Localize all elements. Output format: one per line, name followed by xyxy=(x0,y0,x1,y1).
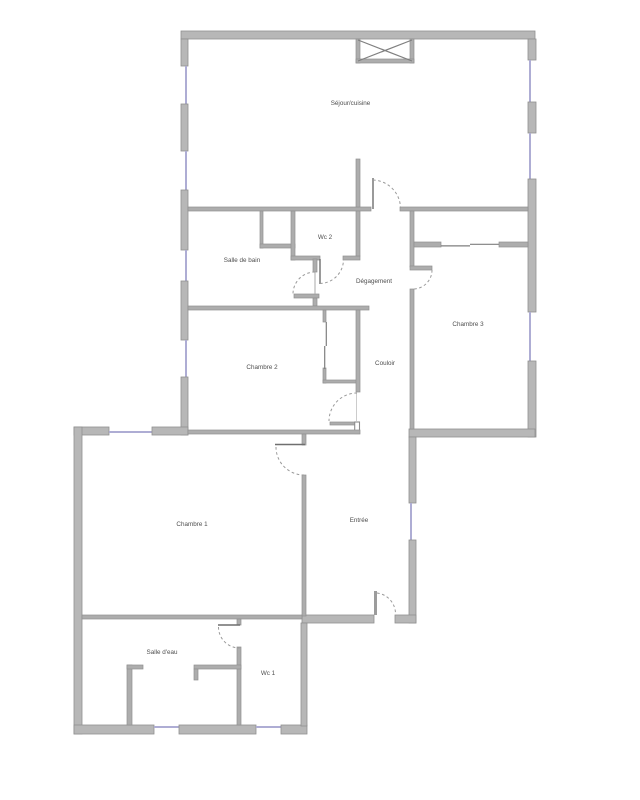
svg-text:Wc 2: Wc 2 xyxy=(318,234,333,241)
svg-text:Salle d'eau: Salle d'eau xyxy=(147,649,178,656)
svg-text:Dégagement: Dégagement xyxy=(356,278,392,285)
svg-text:Couloir: Couloir xyxy=(375,360,395,367)
svg-text:Chambre 1: Chambre 1 xyxy=(176,521,208,528)
svg-text:Séjour/cuisine: Séjour/cuisine xyxy=(331,100,371,107)
svg-text:Chambre 3: Chambre 3 xyxy=(452,321,484,328)
svg-text:Entrée: Entrée xyxy=(350,517,369,524)
svg-text:Chambre 2: Chambre 2 xyxy=(246,364,278,371)
svg-text:Wc 1: Wc 1 xyxy=(261,670,276,677)
svg-text:Salle de bain: Salle de bain xyxy=(224,257,261,264)
